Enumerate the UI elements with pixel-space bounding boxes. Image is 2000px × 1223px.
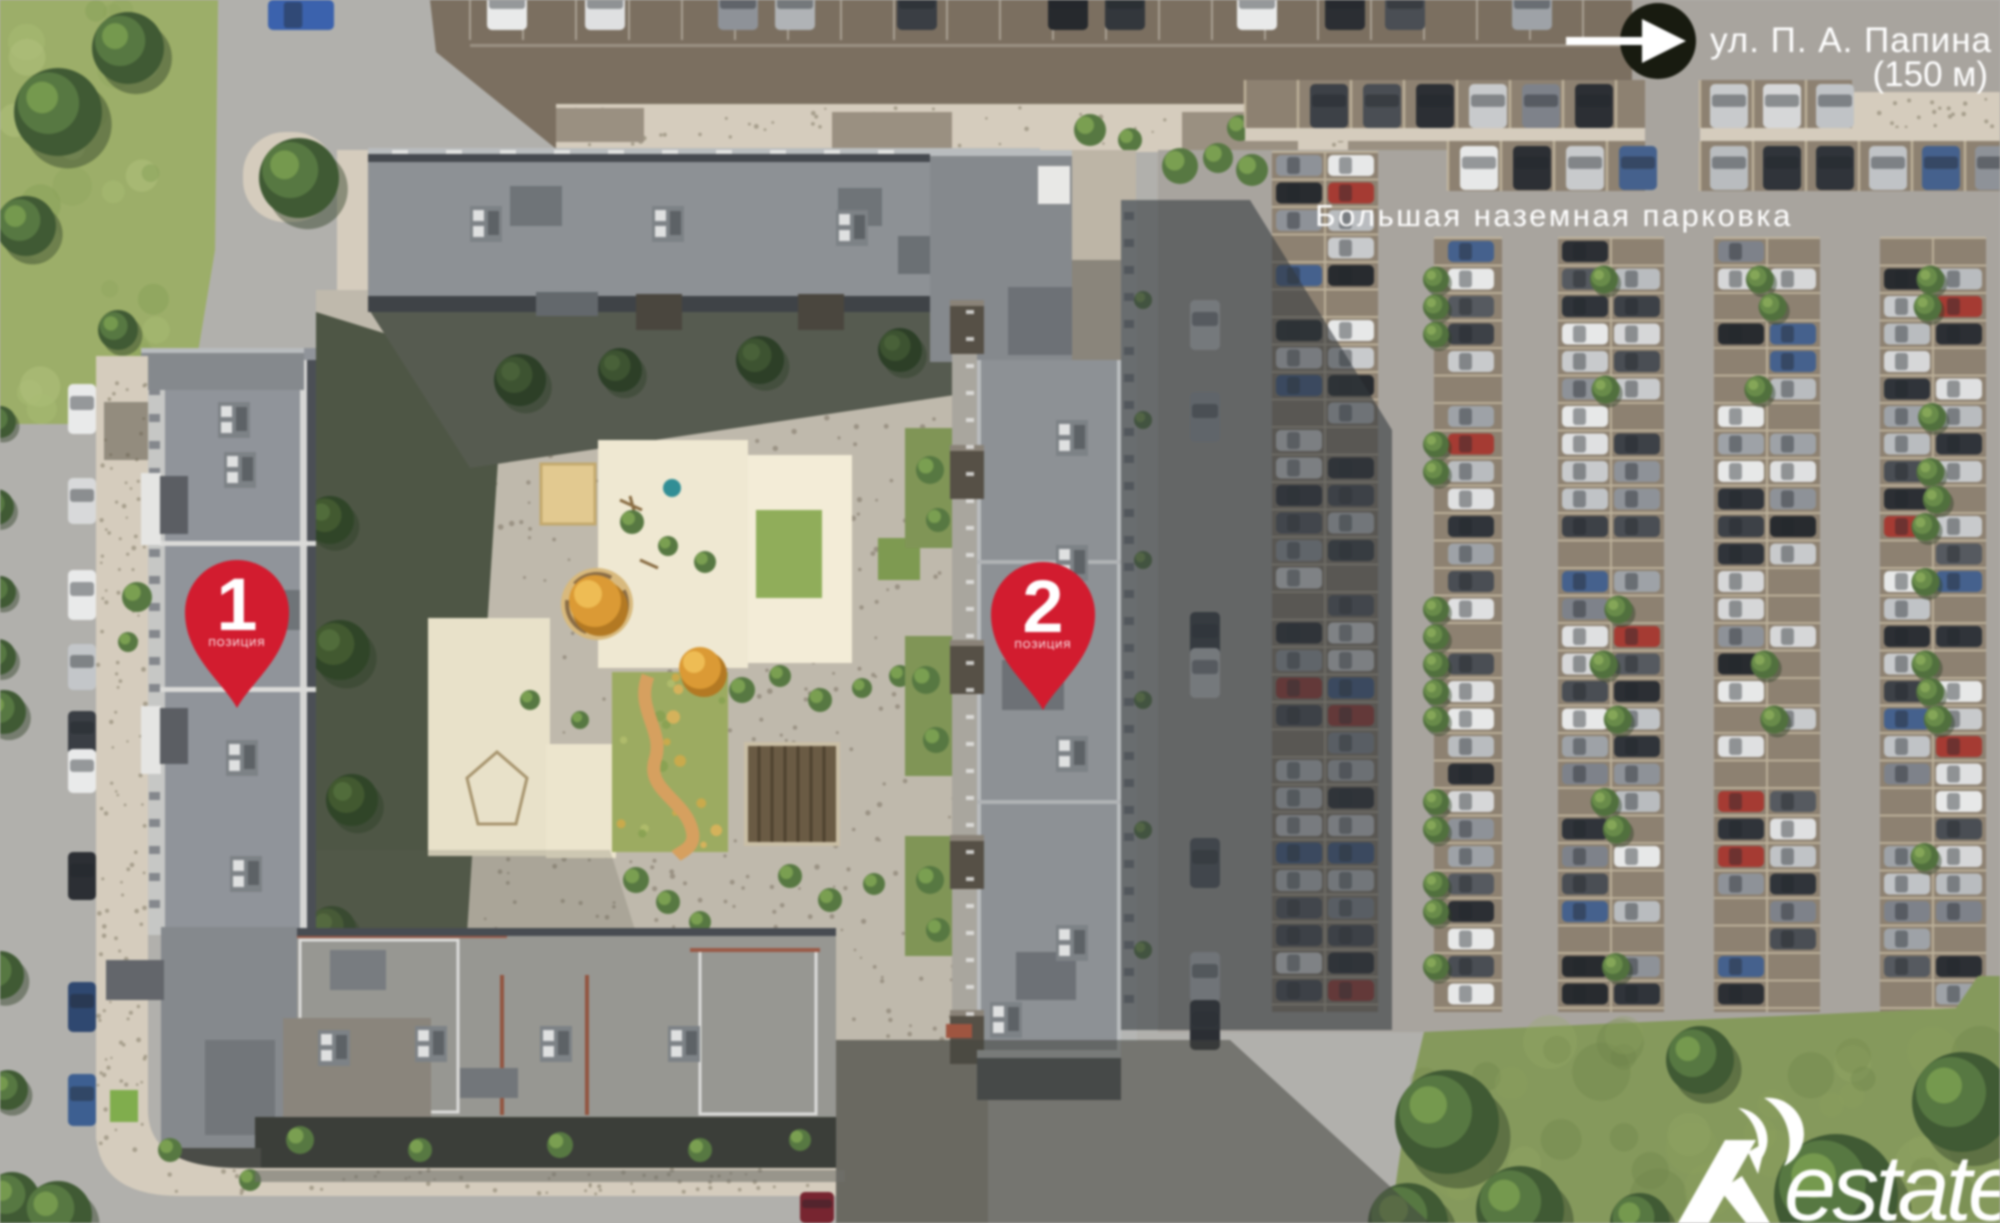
svg-text:ПОЗИЦИЯ: ПОЗИЦИЯ (1015, 640, 1072, 651)
svg-text:ПОЗИЦИЯ: ПОЗИЦИЯ (209, 638, 266, 649)
svg-text:2: 2 (1022, 565, 1063, 648)
svg-text:Большая наземная парковка: Большая наземная парковка (1315, 198, 1793, 233)
svg-text:estate: estate (1784, 1135, 2000, 1223)
svg-text:(150 м): (150 м) (1873, 55, 1989, 94)
svg-text:1: 1 (216, 563, 257, 646)
